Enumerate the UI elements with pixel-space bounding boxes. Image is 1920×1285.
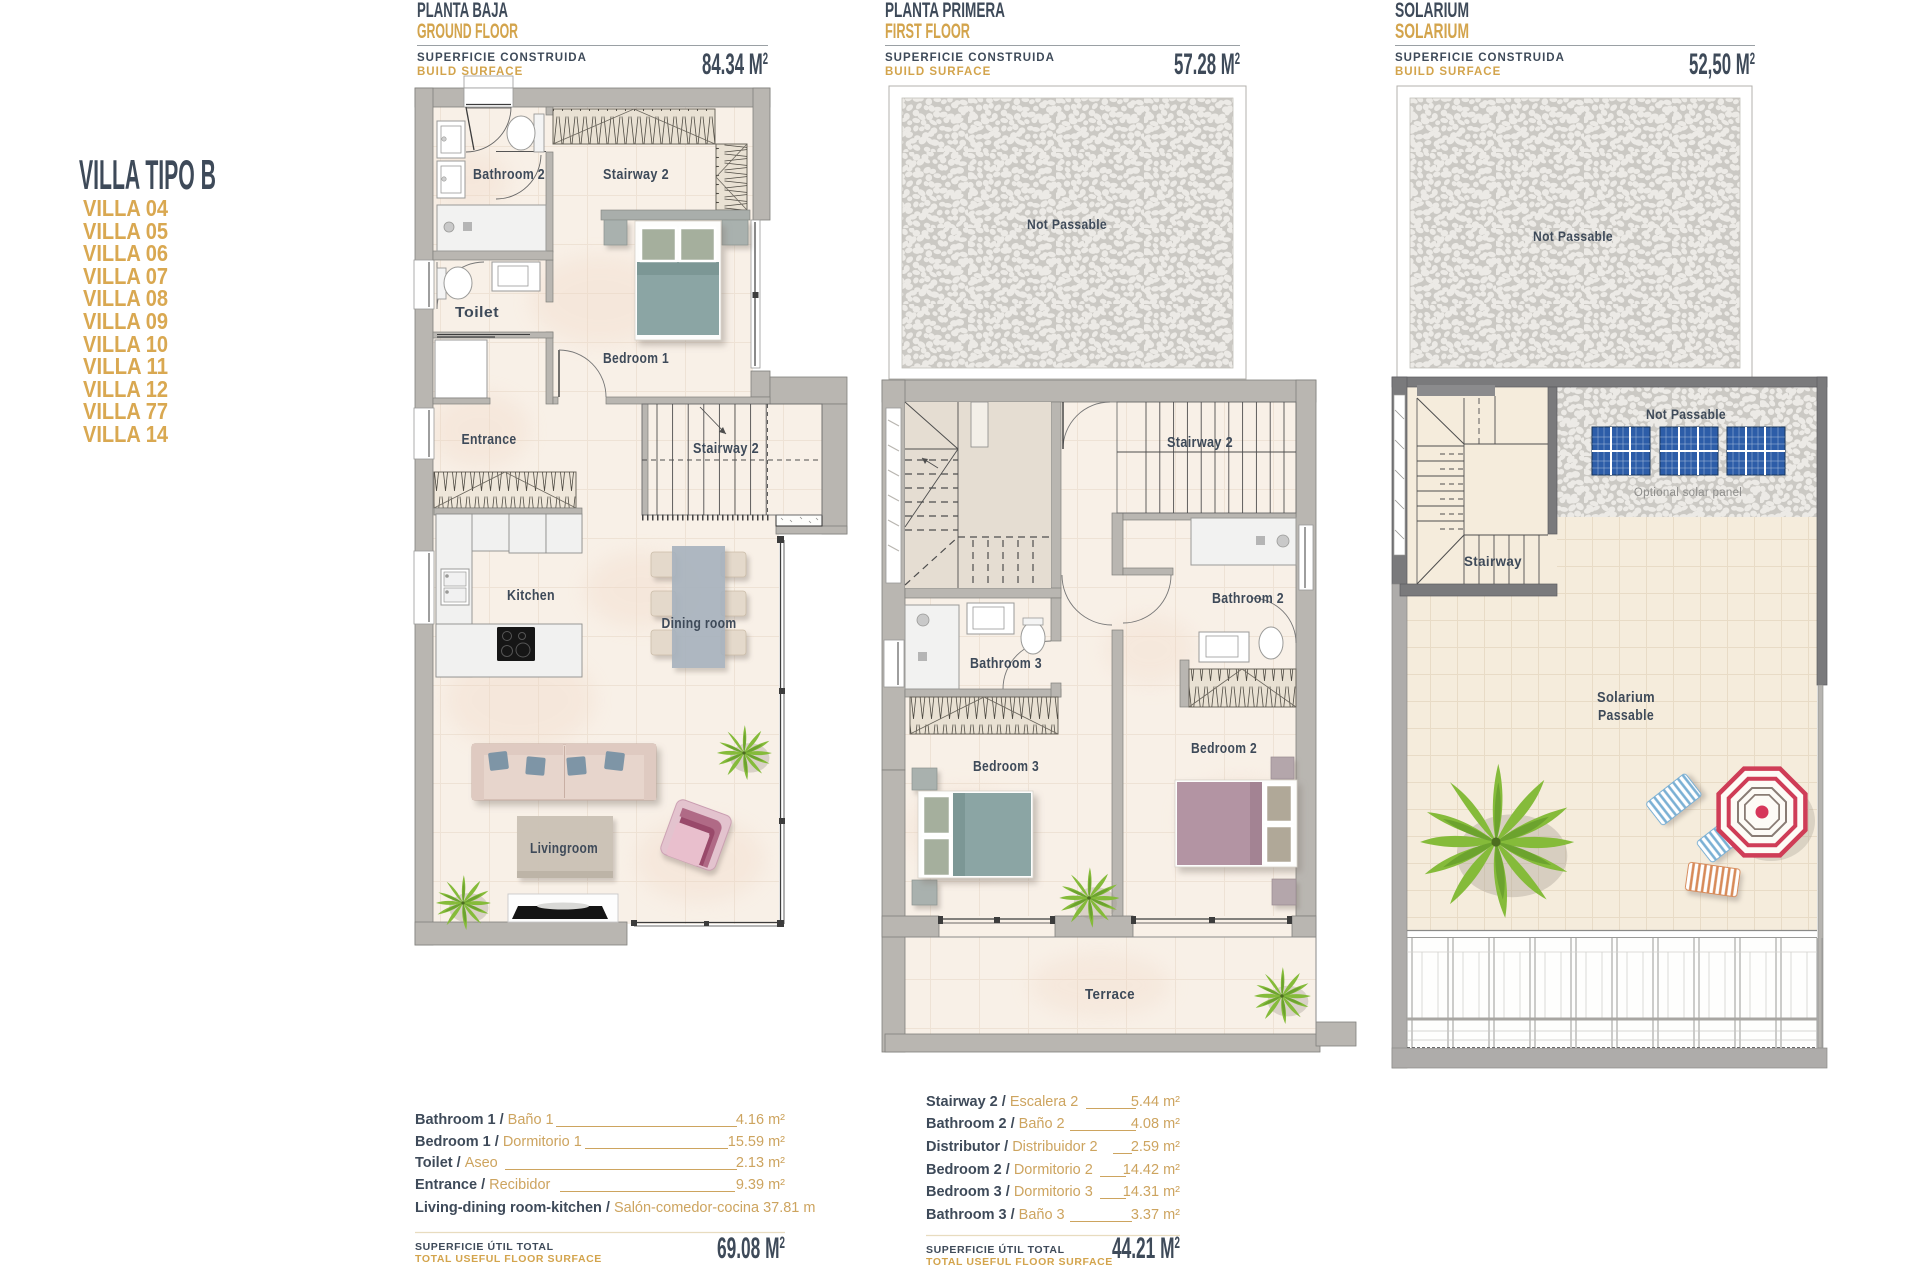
svg-text:Stairway: Stairway bbox=[1464, 553, 1522, 569]
svg-text:4.16 m²: 4.16 m² bbox=[736, 1112, 785, 1128]
svg-text:SUPERFICIE CONSTRUIDA: SUPERFICIE CONSTRUIDA bbox=[1395, 52, 1565, 64]
svg-text:9.39 m²: 9.39 m² bbox=[736, 1177, 785, 1193]
svg-text:Not Passable: Not Passable bbox=[1646, 406, 1726, 422]
svg-text:Toilet: Toilet bbox=[455, 304, 499, 321]
svg-text:Bedroom 1: Bedroom 1 bbox=[603, 350, 669, 367]
svg-text:Bathroom 2 / Baño 2: Bathroom 2 / Baño 2 bbox=[926, 1116, 1065, 1132]
svg-text:Stairway 2: Stairway 2 bbox=[603, 166, 669, 183]
svg-text:VILLA TIPO B: VILLA TIPO B bbox=[79, 151, 216, 198]
svg-text:Stairway 2: Stairway 2 bbox=[1167, 434, 1233, 451]
svg-text:Bedroom 3: Bedroom 3 bbox=[973, 758, 1039, 775]
svg-text:GROUND FLOOR: GROUND FLOOR bbox=[417, 20, 518, 43]
svg-text:PLANTA PRIMERA: PLANTA PRIMERA bbox=[885, 0, 1005, 22]
svg-text:SOLARIUM: SOLARIUM bbox=[1395, 0, 1469, 22]
svg-text:2.13 m²: 2.13 m² bbox=[736, 1155, 785, 1171]
svg-text:Dining room: Dining room bbox=[662, 615, 737, 632]
svg-text:4.08 m²: 4.08 m² bbox=[1131, 1116, 1180, 1132]
svg-text:Distributor / Distribuidor 2: Distributor / Distribuidor 2 bbox=[926, 1139, 1098, 1155]
svg-text:BUILD SURFACE: BUILD SURFACE bbox=[885, 66, 991, 78]
svg-text:2.59 m²: 2.59 m² bbox=[1131, 1139, 1180, 1155]
svg-text:Bedroom 2 / Dormitorio 2: Bedroom 2 / Dormitorio 2 bbox=[926, 1162, 1093, 1178]
svg-text:SUPERFICIE ÚTIL TOTAL: SUPERFICIE ÚTIL TOTAL bbox=[415, 1240, 554, 1253]
svg-text:Kitchen: Kitchen bbox=[507, 587, 555, 604]
svg-text:5.44 m²: 5.44 m² bbox=[1131, 1094, 1180, 1110]
svg-text:Bedroom 1 / Dormitorio 1: Bedroom 1 / Dormitorio 1 bbox=[415, 1134, 582, 1150]
svg-text:Bathroom 3: Bathroom 3 bbox=[970, 655, 1042, 672]
svg-text:SUPERFICIE CONSTRUIDA: SUPERFICIE CONSTRUIDA bbox=[885, 52, 1055, 64]
svg-text:SUPERFICIE CONSTRUIDA: SUPERFICIE CONSTRUIDA bbox=[417, 52, 587, 64]
svg-text:Stairway 2 / Escalera 2: Stairway 2 / Escalera 2 bbox=[926, 1094, 1078, 1110]
svg-text:Bathroom 1 / Baño 1: Bathroom 1 / Baño 1 bbox=[415, 1112, 554, 1128]
svg-text:Entrance: Entrance bbox=[462, 431, 517, 448]
svg-text:69.08 M2: 69.08 M2 bbox=[717, 1232, 785, 1265]
svg-text:57.28 M2: 57.28 M2 bbox=[1174, 48, 1240, 81]
svg-text:14.42 m²: 14.42 m² bbox=[1123, 1162, 1180, 1178]
svg-text:Bathroom 3 / Baño 3: Bathroom 3 / Baño 3 bbox=[926, 1207, 1065, 1223]
svg-text:Not Passable: Not Passable bbox=[1027, 216, 1107, 232]
svg-text:Bedroom 2: Bedroom 2 bbox=[1191, 740, 1257, 757]
svg-text:Passable: Passable bbox=[1598, 707, 1654, 724]
svg-text:Livingroom: Livingroom bbox=[530, 840, 598, 857]
svg-text:TOTAL USEFUL FLOOR SURFACE: TOTAL USEFUL FLOOR SURFACE bbox=[926, 1256, 1113, 1268]
svg-text:Toilet / Aseo: Toilet / Aseo bbox=[415, 1155, 498, 1171]
svg-text:VILLA 14: VILLA 14 bbox=[83, 421, 168, 447]
svg-text:Solarium: Solarium bbox=[1597, 689, 1655, 706]
svg-text:Stairway 2: Stairway 2 bbox=[693, 440, 759, 457]
svg-text:15.59 m²: 15.59 m² bbox=[728, 1134, 785, 1150]
svg-text:84.34 M2: 84.34 M2 bbox=[702, 48, 768, 81]
svg-text:Bathroom 2: Bathroom 2 bbox=[473, 166, 545, 183]
svg-text:FIRST FLOOR: FIRST FLOOR bbox=[885, 20, 970, 43]
svg-text:44.21 M2: 44.21 M2 bbox=[1112, 1232, 1180, 1265]
svg-text:SUPERFICIE ÚTIL TOTAL: SUPERFICIE ÚTIL TOTAL bbox=[926, 1243, 1065, 1256]
svg-text:Terrace: Terrace bbox=[1085, 986, 1135, 1003]
svg-text:BUILD SURFACE: BUILD SURFACE bbox=[1395, 66, 1501, 78]
svg-text:Bedroom 3 / Dormitorio 3: Bedroom 3 / Dormitorio 3 bbox=[926, 1184, 1093, 1200]
svg-text:14.31 m²: 14.31 m² bbox=[1123, 1184, 1180, 1200]
svg-text:3.37 m²: 3.37 m² bbox=[1131, 1207, 1180, 1223]
svg-text:SOLARIUM: SOLARIUM bbox=[1395, 20, 1469, 43]
svg-text:Bathroom 2: Bathroom 2 bbox=[1212, 590, 1284, 607]
svg-text:Entrance / Recibidor: Entrance / Recibidor bbox=[415, 1177, 551, 1193]
svg-text:Not Passable: Not Passable bbox=[1533, 228, 1613, 244]
svg-text:Living-dining room-kitchen / S: Living-dining room-kitchen / Salón-comed… bbox=[415, 1200, 815, 1216]
svg-text:TOTAL USEFUL FLOOR SURFACE: TOTAL USEFUL FLOOR SURFACE bbox=[415, 1253, 602, 1265]
svg-text:PLANTA BAJA: PLANTA BAJA bbox=[417, 0, 508, 22]
svg-text:52,50 M2: 52,50 M2 bbox=[1689, 48, 1755, 81]
svg-text:Optional solar panel: Optional solar panel bbox=[1634, 487, 1742, 499]
